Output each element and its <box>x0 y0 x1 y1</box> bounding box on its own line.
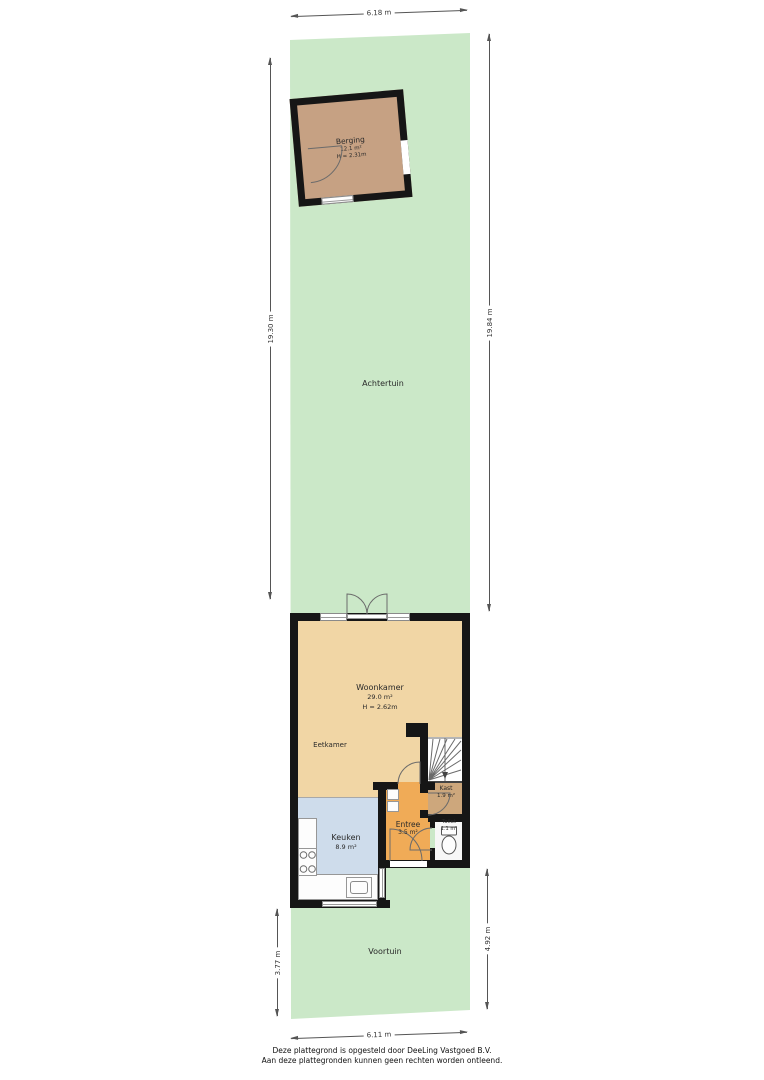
berging-label: Berging 12.1 m² H = 2.31m <box>297 97 405 199</box>
keuken-name: Keuken <box>320 833 372 843</box>
keuken-area: 8.9 m² <box>320 843 372 851</box>
french-door-sill <box>347 614 387 619</box>
dim-arrow-down-icon <box>487 604 491 612</box>
eetkamer-name: Eetkamer <box>305 741 355 750</box>
dim-top: 6.18 m <box>290 3 468 23</box>
dim-top-label: 6.18 m <box>364 8 395 17</box>
window-pane-line <box>323 904 376 905</box>
wall-left <box>290 613 298 908</box>
dim-left-upper: 19.30 m <box>266 57 275 600</box>
dim-arrow-right-icon <box>460 1030 468 1034</box>
berging-shed: Berging 12.1 m² H = 2.31m <box>290 89 413 207</box>
dim-left-upper-label: 19.30 m <box>267 311 275 346</box>
voortuin-label: Voortuin <box>340 947 430 957</box>
woonkamer-height: H = 2.62m <box>330 703 430 711</box>
stairs-area <box>428 737 462 782</box>
entree-name: Entree <box>386 820 430 829</box>
dim-right-upper-label: 19.84 m <box>486 305 494 340</box>
entree-label: Entree 3.5 m² <box>386 820 430 837</box>
woonkamer-name: Woonkamer <box>330 683 430 693</box>
front-door-opening <box>390 861 427 867</box>
toilet-name: Toilet <box>436 819 462 826</box>
keuken-window-east-icon <box>379 868 385 898</box>
dim-right-lower: 4.92 m <box>483 868 492 1010</box>
dim-arrow-left-icon <box>290 14 298 18</box>
meter-cupboard-box-2 <box>387 801 399 812</box>
keuken-window-bottom-icon <box>322 901 377 907</box>
keuken-label: Keuken 8.9 m² <box>320 833 372 851</box>
wall-toilet-left-b <box>430 848 435 862</box>
wall-toilet-left-a <box>430 822 435 828</box>
woonkamer-label: Woonkamer 29.0 m² H = 2.62m <box>330 683 430 711</box>
dim-arrow-right-icon <box>460 8 468 12</box>
wall-stairs-stub <box>406 723 428 737</box>
stove-icon <box>298 848 317 876</box>
dim-left-lower-label: 3.77 m <box>274 947 282 978</box>
voortuin-name: Voortuin <box>340 947 430 957</box>
kast-label: Kast 1.9 m² <box>430 785 462 799</box>
sink-icon <box>346 877 372 898</box>
dim-bottom-label: 6.11 m <box>364 1030 395 1039</box>
meter-cupboard-box-1 <box>387 789 399 800</box>
kast-name: Kast <box>430 785 462 793</box>
footer-disclaimer: Deze plattegrond is opgesteld door DeeLi… <box>0 1046 764 1066</box>
dim-right-upper: 19.84 m <box>485 33 494 612</box>
floorplan: Berging 12.1 m² H = 2.31m <box>0 0 764 1080</box>
footer-line-1: Deze plattegrond is opgesteld door DeeLi… <box>0 1046 764 1056</box>
woonkamer-window-right-icon <box>387 613 410 621</box>
wall-keuken-entree <box>378 782 386 862</box>
achtertuin-label: Achtertuin <box>338 379 428 389</box>
wall-kast-left-a <box>420 782 428 793</box>
toilet-label: Toilet 1.1 m² <box>436 819 462 832</box>
dim-bottom: 6.11 m <box>290 1025 468 1045</box>
dim-arrow-up-icon <box>485 868 489 876</box>
window-pane-line <box>323 199 353 203</box>
eetkamer-label: Eetkamer <box>305 741 355 750</box>
dim-arrow-up-icon <box>275 908 279 916</box>
dim-arrow-up-icon <box>268 57 272 65</box>
wall-kast-left-b <box>420 810 428 818</box>
dim-arrow-down-icon <box>268 592 272 600</box>
dim-arrow-left-icon <box>290 1036 298 1040</box>
wall-right <box>462 613 470 868</box>
toilet-area: 1.1 m² <box>436 826 462 832</box>
dim-right-lower-label: 4.92 m <box>484 924 492 955</box>
keuken-eetkamer-line <box>298 797 378 798</box>
sink-basin <box>350 881 368 894</box>
window-pane-line <box>321 617 346 618</box>
window-pane-line <box>388 617 409 618</box>
dim-arrow-up-icon <box>487 33 491 41</box>
footer-line-2: Aan deze plattegronden kunnen geen recht… <box>0 1056 764 1066</box>
kast-area: 1.9 m² <box>430 793 462 800</box>
woonkamer-window-left-icon <box>320 613 347 621</box>
achtertuin-name: Achtertuin <box>338 379 428 389</box>
entree-area: 3.5 m² <box>386 829 430 837</box>
dim-arrow-down-icon <box>485 1002 489 1010</box>
dim-left-lower: 3.77 m <box>273 908 282 1017</box>
woonkamer-area: 29.0 m² <box>330 693 430 701</box>
dim-arrow-down-icon <box>275 1009 279 1017</box>
window-pane-line <box>382 869 383 897</box>
